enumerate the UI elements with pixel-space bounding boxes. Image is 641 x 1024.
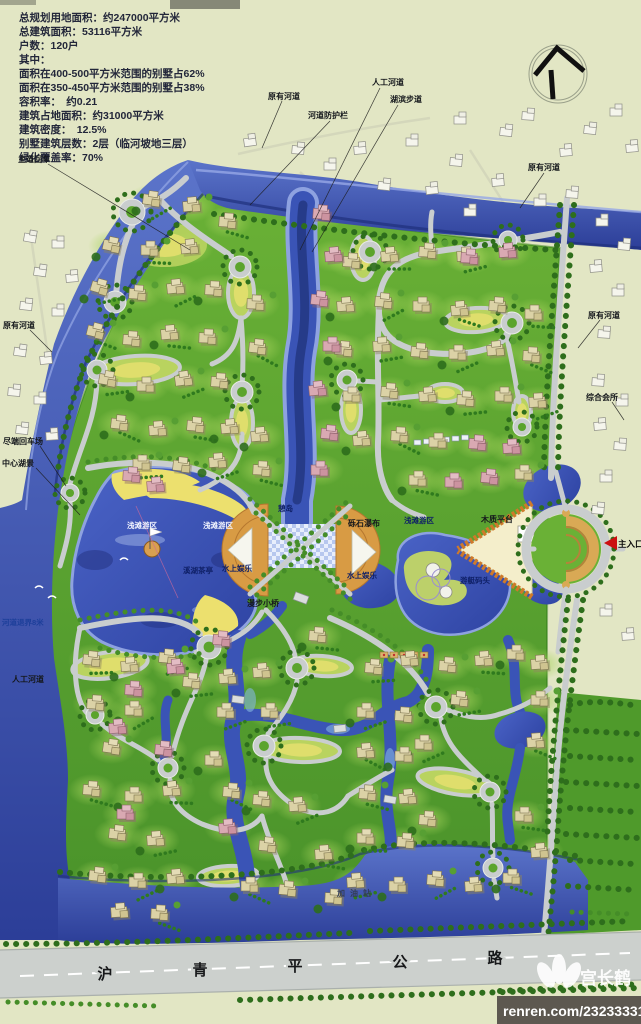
cul-de-sac-island	[259, 741, 269, 751]
highway-char: 沪	[97, 965, 112, 983]
tree	[398, 290, 405, 297]
tree	[450, 868, 457, 875]
label-wooden-platform: 木质平台	[480, 514, 513, 524]
label-river-setback: 河道退界8米	[2, 617, 44, 627]
tree	[440, 317, 449, 326]
label-shallow-beach-zone: 浅滩游区	[127, 520, 157, 530]
tree	[152, 282, 159, 289]
tree	[100, 431, 109, 440]
label-clubhouse: 综合会所	[586, 392, 618, 402]
label-main-entrance: 主入口	[618, 539, 641, 549]
cul-de-sac-island	[292, 663, 302, 673]
tree	[186, 778, 193, 785]
tree	[242, 666, 249, 673]
label-original-river: 原有河道	[268, 91, 300, 101]
label-water-recreation: 水上娱乐	[222, 563, 252, 573]
tree	[396, 334, 403, 341]
tree	[404, 380, 411, 387]
tree	[298, 643, 307, 652]
tree	[198, 368, 205, 375]
tree	[474, 688, 481, 695]
tree	[80, 295, 89, 304]
label-shallow-beach-zone: 浅滩游区	[404, 515, 434, 525]
label-gas-station: 加油站	[336, 888, 376, 898]
flower	[383, 654, 385, 656]
stat-line: 建筑密度： 12.5%	[18, 123, 107, 136]
stat-line: 其中：	[19, 53, 51, 66]
tree	[156, 452, 163, 459]
stat-line: 面积在400-500平方米范围的别墅占62%	[19, 67, 205, 80]
tree	[510, 338, 517, 345]
highway-char: 平	[287, 958, 302, 975]
watermark-author: 宫长鹤	[580, 968, 631, 988]
label-shallow-beach-zone: 浅滩游区	[203, 520, 233, 530]
tree	[446, 407, 455, 416]
cul-de-sac-island	[235, 262, 245, 272]
site-plan-page: 沪 青 平 公 路 总规划用地面积：约247000平方米 总建筑面积：53116…	[0, 0, 641, 1024]
tree	[164, 238, 171, 245]
tree	[538, 804, 545, 811]
tree	[398, 487, 407, 496]
tree	[326, 313, 335, 322]
stat-line: 容积率： 约0.21	[18, 95, 97, 108]
tree	[276, 660, 283, 667]
tree	[112, 864, 119, 871]
tree	[302, 878, 309, 885]
tree	[126, 736, 133, 743]
tree	[496, 661, 505, 670]
scan-smudge	[170, 0, 240, 9]
label-artificial-river: 人工河道	[12, 674, 44, 684]
tree	[346, 719, 355, 728]
cul-de-sac-island	[365, 247, 375, 257]
label-lakeside-walk: 湖滨步道	[390, 94, 422, 104]
tree	[172, 689, 181, 698]
tree	[370, 263, 379, 272]
tree	[132, 207, 141, 216]
highway-char: 路	[487, 949, 503, 967]
tree	[420, 830, 427, 837]
label-dead-end-turnaround: 尽端回车场	[3, 436, 43, 446]
tree	[518, 384, 525, 391]
label-main-road-turnaround: 主道回车	[18, 154, 50, 164]
tree	[156, 885, 165, 894]
tree	[174, 902, 181, 909]
cul-de-sac-island	[518, 423, 526, 431]
tree	[230, 893, 239, 902]
tree	[210, 435, 219, 444]
tree	[554, 688, 561, 695]
scan-smudge	[0, 0, 36, 5]
tree	[182, 646, 189, 653]
label-river-guardrail: 河道防护栏	[308, 110, 348, 120]
tree	[198, 469, 207, 478]
cul-de-sac-island	[164, 764, 173, 773]
tree	[206, 194, 213, 201]
tree	[438, 361, 447, 370]
flower	[423, 654, 425, 656]
garden-core	[435, 388, 455, 398]
tree	[246, 780, 253, 787]
label-original-river: 原有河道	[3, 320, 35, 330]
tree	[418, 704, 425, 711]
tree	[312, 794, 319, 801]
tree	[382, 782, 389, 789]
stat-line: 总建筑面积：53116平方米	[19, 25, 143, 38]
cul-de-sac-island	[431, 702, 441, 712]
tree	[110, 673, 119, 682]
tree	[324, 357, 333, 366]
stat-line: 面积在350-450平方米范围的别墅占38%	[19, 81, 205, 94]
label-lake-tea-pavilion: 溪湖茶亭	[183, 565, 213, 575]
master-plan-drawing: 沪 青 平 公 路 总规划用地面积：约247000平方米 总建筑面积：53116…	[0, 0, 641, 1024]
cul-de-sac-island	[237, 387, 247, 397]
flower	[393, 654, 395, 656]
tree	[150, 341, 159, 350]
tree	[462, 654, 469, 661]
tree	[222, 326, 229, 333]
tree	[276, 458, 283, 465]
tree	[136, 847, 145, 856]
label-gravel-waterfall: 砾石瀑布	[348, 518, 380, 528]
tree	[346, 845, 355, 854]
label-original-river: 原有河道	[588, 310, 620, 320]
tree	[442, 240, 449, 247]
watermark-url: renren.com/232333316	[503, 1003, 641, 1019]
tree	[194, 297, 203, 306]
tree	[92, 253, 101, 262]
label-water-recreation: 水上娱乐	[347, 570, 377, 580]
pergola	[462, 435, 469, 440]
tree	[270, 292, 277, 299]
label-yacht-dock: 游艇码头	[460, 575, 490, 585]
cul-de-sac-island	[343, 376, 352, 385]
pergola	[414, 440, 421, 445]
label-central-lake-view: 中心湖景	[2, 458, 34, 468]
cul-de-sac-island	[507, 318, 517, 328]
label-rest-island: 憩岛	[278, 503, 293, 513]
stat-line: 建筑占地面积：约31000平方米	[18, 109, 164, 122]
stat-line: 总规划用地面积：约247000平方米	[19, 11, 181, 24]
cul-de-sac-island	[93, 366, 102, 375]
tea-pavilion	[144, 541, 160, 557]
pergola	[452, 436, 459, 441]
tree	[512, 294, 519, 301]
tree	[110, 320, 117, 327]
label-original-river: 原有河道	[528, 162, 560, 172]
cul-de-sac-island	[66, 489, 74, 497]
tree	[240, 443, 249, 452]
tree	[538, 462, 545, 469]
tree	[492, 885, 501, 894]
tree	[126, 393, 135, 402]
highway-char: 公	[392, 954, 407, 971]
tree	[384, 763, 393, 772]
tree	[378, 893, 387, 902]
tree	[332, 403, 341, 412]
tree	[242, 807, 251, 816]
label-artificial-river: 人工河道	[372, 77, 404, 87]
cul-de-sac-island	[486, 788, 495, 797]
cul-de-sac-island	[489, 864, 498, 873]
tree	[194, 767, 203, 776]
tree	[414, 424, 421, 431]
label-strolling-bridge: 漫步小桥	[247, 598, 280, 608]
tree	[314, 905, 323, 914]
cul-de-sac-island	[91, 711, 99, 719]
stat-line: 户数：120户	[18, 39, 79, 52]
stat-line: 别墅建筑层数：2层（临河坡地三层）	[18, 137, 193, 150]
tree	[342, 447, 351, 456]
tree	[172, 418, 179, 425]
highway-char: 青	[192, 961, 207, 979]
